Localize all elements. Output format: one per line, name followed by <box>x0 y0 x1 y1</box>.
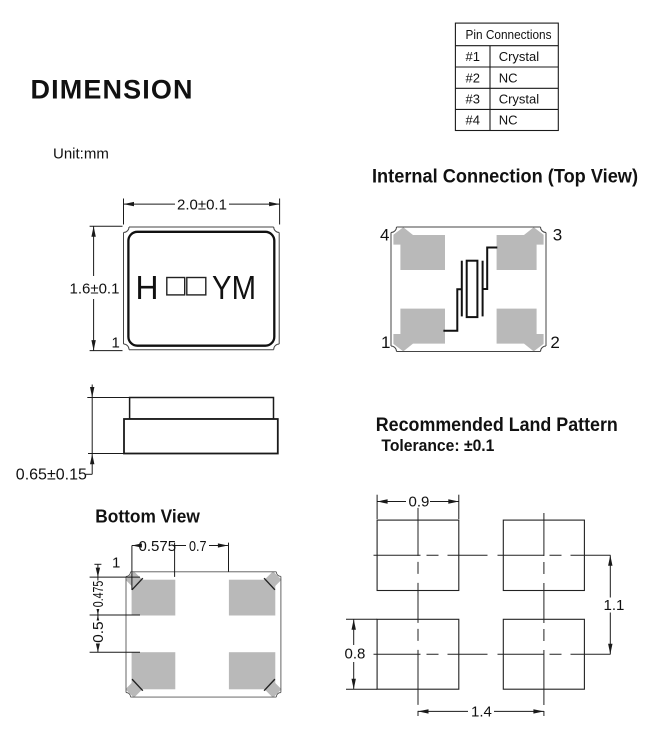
svg-text:0.7: 0.7 <box>189 538 207 555</box>
svg-text:Tolerance: ±0.1: Tolerance: ±0.1 <box>381 437 494 455</box>
svg-text:1: 1 <box>112 555 120 572</box>
svg-text:#1: #1 <box>466 49 480 64</box>
svg-text:0.65±0.15: 0.65±0.15 <box>16 467 87 484</box>
svg-text:1.4: 1.4 <box>471 704 492 721</box>
svg-text:#2: #2 <box>466 70 480 85</box>
svg-text:Crystal: Crystal <box>499 49 540 64</box>
svg-text:Recommended Land Pattern: Recommended Land Pattern <box>376 415 618 436</box>
svg-text:Bottom View: Bottom View <box>95 507 200 527</box>
svg-text:2.0±0.1: 2.0±0.1 <box>177 197 227 214</box>
svg-text:Unit:mm: Unit:mm <box>53 146 109 163</box>
svg-text:NC: NC <box>499 70 518 85</box>
svg-text:Pin Connections: Pin Connections <box>466 27 552 42</box>
svg-text:1: 1 <box>112 335 120 352</box>
svg-text:2: 2 <box>550 333 559 352</box>
svg-text:1: 1 <box>381 333 390 352</box>
svg-text:NC: NC <box>499 113 518 128</box>
svg-text:4: 4 <box>380 226 389 245</box>
svg-text:Internal Connection (Top View): Internal Connection (Top View) <box>372 167 638 188</box>
svg-text:0.475: 0.475 <box>90 581 107 608</box>
svg-text:0.5: 0.5 <box>90 621 107 643</box>
svg-text:0.9: 0.9 <box>409 494 430 511</box>
svg-text:1.1: 1.1 <box>604 597 625 614</box>
svg-text:#4: #4 <box>466 113 480 128</box>
svg-text:YM: YM <box>212 270 256 307</box>
svg-text:3: 3 <box>553 226 562 245</box>
svg-text:DIMENSION: DIMENSION <box>31 75 193 105</box>
svg-text:1.6±0.1: 1.6±0.1 <box>70 281 120 298</box>
svg-text:#3: #3 <box>466 92 480 107</box>
svg-text:0.8: 0.8 <box>345 646 366 663</box>
svg-text:H: H <box>136 270 159 307</box>
svg-text:Crystal: Crystal <box>499 92 540 107</box>
svg-text:0.575: 0.575 <box>139 538 177 555</box>
